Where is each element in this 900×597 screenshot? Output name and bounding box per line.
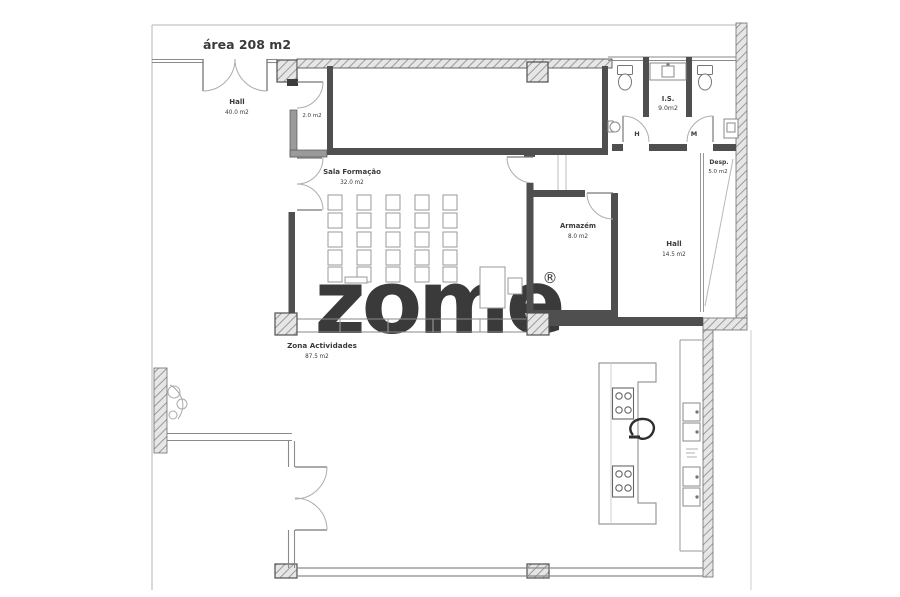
toilet-h-icon bbox=[618, 66, 633, 91]
room-is: I.S. 9.0m2 bbox=[658, 95, 678, 112]
room-vestibule-area: 2.0 m2 bbox=[302, 113, 321, 119]
room-sala-formacao: Sala Formação 32.0 m2 bbox=[323, 168, 381, 186]
room-area: 14.5 m2 bbox=[662, 252, 686, 258]
armazem-door bbox=[587, 193, 613, 219]
room-area: 9.0m2 bbox=[658, 105, 678, 112]
room-area: 87.5 m2 bbox=[305, 354, 329, 360]
outer-walls bbox=[703, 23, 747, 577]
top-room-pillar bbox=[527, 62, 548, 82]
watermark-registered-icon: ® bbox=[543, 269, 558, 287]
watermark-text: zome bbox=[314, 251, 561, 354]
cooktop-icon-2 bbox=[613, 466, 634, 497]
room-label: Sala Formação bbox=[323, 168, 381, 176]
watermark: zome ® bbox=[314, 251, 561, 354]
room-label: Hall bbox=[229, 98, 244, 106]
room-area: 5.0 m2 bbox=[708, 169, 727, 175]
plan-title: área 208 m2 bbox=[203, 37, 291, 52]
toilet-m-icon bbox=[698, 66, 713, 91]
room-hall-main: Hall 40.0 m2 bbox=[225, 98, 249, 116]
room-label: I.S. bbox=[662, 95, 675, 103]
top-room-to-sala-door bbox=[507, 157, 533, 183]
kitchen-top-wall bbox=[548, 317, 703, 326]
cooktop-icon bbox=[613, 388, 634, 419]
desp-area bbox=[701, 153, 734, 312]
wall-counter bbox=[680, 340, 702, 551]
corner-sink-icon bbox=[608, 121, 620, 132]
floor-plan: zome ® bbox=[0, 0, 900, 597]
room-area: 40.0 m2 bbox=[225, 110, 249, 116]
room-label: Desp. bbox=[709, 159, 728, 166]
zona-double-door bbox=[295, 467, 327, 530]
room-armazem: Armazém 8.0 m2 bbox=[560, 222, 596, 240]
toilet-doors bbox=[623, 116, 713, 142]
room-label: Hall bbox=[666, 240, 681, 248]
top-room-walls bbox=[297, 59, 612, 157]
washbasin-icon bbox=[650, 63, 686, 80]
bottom-wall bbox=[297, 568, 703, 576]
door-jamb bbox=[524, 148, 535, 157]
left-step-walls bbox=[163, 434, 295, 569]
left-wall-pier bbox=[154, 368, 167, 453]
plant-icon bbox=[168, 385, 187, 419]
room-wc-h-label: H bbox=[634, 130, 639, 138]
entrance-pillar bbox=[277, 60, 298, 86]
entrance-double-door bbox=[203, 59, 267, 91]
hall-top-wall bbox=[152, 60, 277, 63]
floor-plan-page: zome ® bbox=[0, 0, 900, 597]
vestibule-doors bbox=[297, 82, 323, 210]
room-hall-right: Hall 14.5 m2 bbox=[662, 240, 686, 258]
appliance-units bbox=[683, 403, 700, 506]
room-label: Zona Actividades bbox=[287, 341, 357, 350]
room-area: 8.0 m2 bbox=[568, 234, 588, 240]
utility-sink-icon bbox=[724, 119, 738, 138]
room-wc-m-label: M bbox=[691, 130, 697, 138]
room-area: 32.0 m2 bbox=[340, 180, 364, 186]
kitchen-island bbox=[599, 363, 656, 524]
room-desp: Desp. 5.0 m2 bbox=[708, 159, 728, 175]
room-label: Armazém bbox=[560, 222, 596, 230]
